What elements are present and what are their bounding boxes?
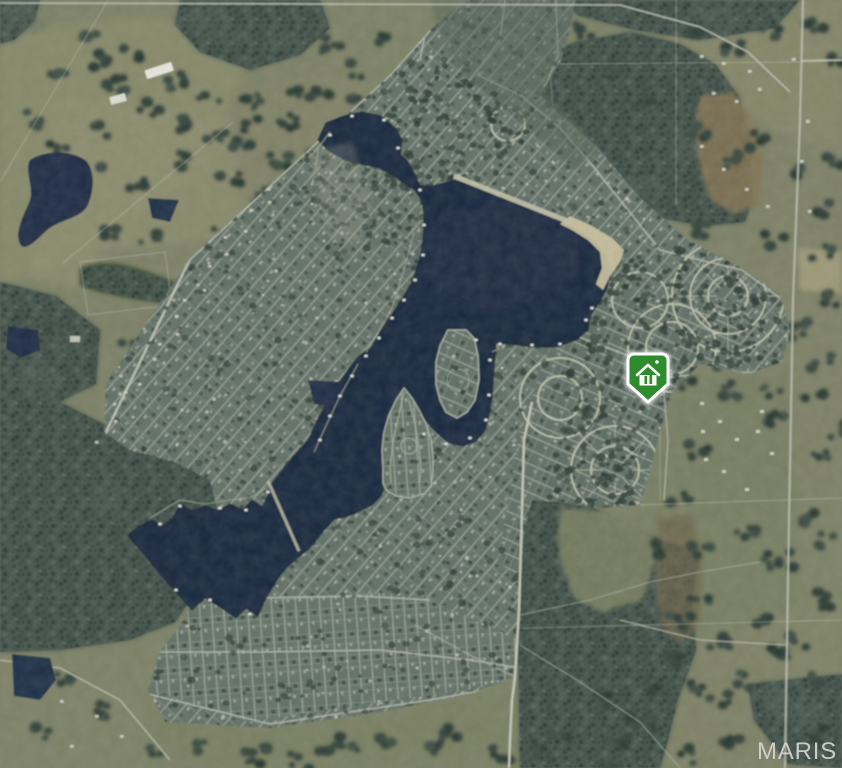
svg-text:MARIS: MARIS — [757, 738, 837, 765]
